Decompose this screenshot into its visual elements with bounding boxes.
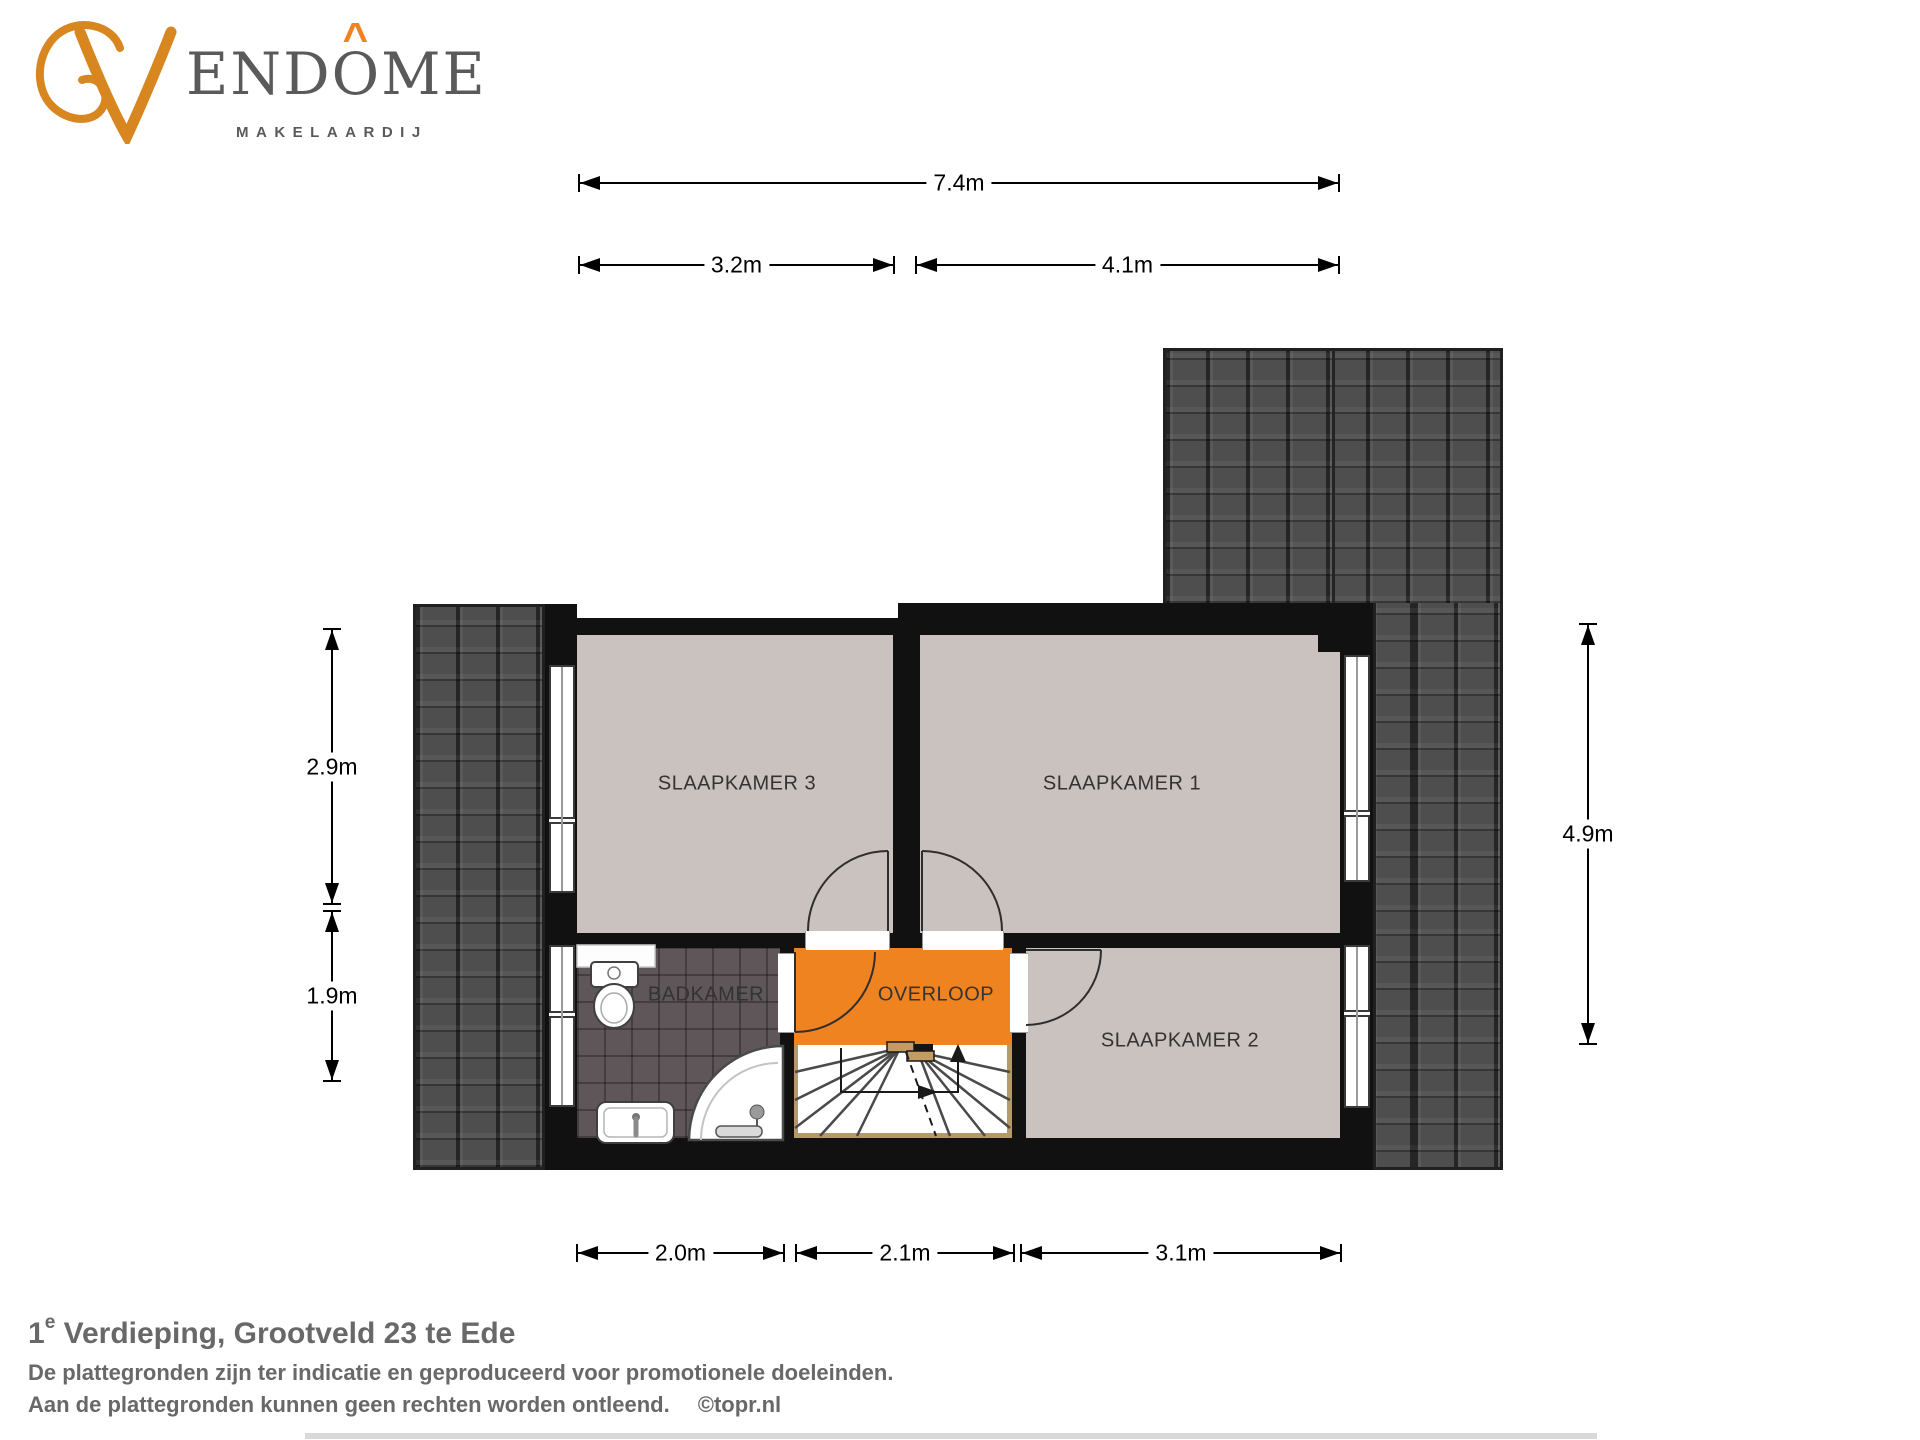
window-slaapkamer1-right	[1344, 655, 1370, 882]
vendome-v-swirl-icon	[28, 12, 198, 144]
dimension-badkamer-width: 2.0m	[576, 1242, 785, 1264]
plan-title-text: Verdieping, Grootveld 23 te Ede	[55, 1317, 515, 1350]
arrow-down-icon	[1581, 1023, 1595, 1043]
bottom-edge-strip	[305, 1433, 1597, 1439]
arrow-left-icon	[797, 1246, 817, 1260]
dimension-left-upper-height: 2.9m	[321, 628, 343, 905]
dimension-label: 2.0m	[648, 1239, 713, 1268]
arrow-up-icon	[325, 630, 339, 650]
dimension-slaapkamer2-width: 3.1m	[1020, 1242, 1342, 1264]
window-transom	[549, 1011, 575, 1018]
wall-corner-top-left	[545, 604, 577, 620]
wordmark-prefix: END	[186, 40, 332, 108]
dimension-label: 4.1m	[1095, 251, 1160, 280]
window-slaapkamer2-right	[1344, 945, 1370, 1108]
plan-title-superscript: e	[45, 1312, 56, 1333]
label-slaapkamer2: SLAAPKAMER 2	[1101, 1030, 1259, 1053]
staircase-area	[793, 1045, 1012, 1138]
dimension-label: 1.9m	[299, 982, 364, 1011]
disclaimer-line-2: Aan de plattegronden kunnen geen rechten…	[28, 1392, 781, 1418]
arrow-right-icon	[873, 258, 893, 272]
wordmark-suffix: ME	[381, 40, 487, 108]
arrow-left-icon	[917, 258, 937, 272]
wall-center-divider	[893, 635, 920, 948]
dimension-label: 4.9m	[1555, 820, 1620, 849]
dimension-label: 3.2m	[704, 251, 769, 280]
arrow-right-icon	[1320, 1246, 1340, 1260]
window-transom	[549, 817, 575, 824]
dimension-slaapkamer1-width: 4.1m	[915, 254, 1340, 276]
label-badkamer: BADKAMER	[648, 984, 764, 1007]
plan-title: 1e Verdieping, Grootveld 23 te Ede	[28, 1316, 515, 1351]
arrow-right-icon	[1318, 258, 1338, 272]
vendome-wordmark: ENDO^ME	[186, 40, 487, 108]
arrow-left-icon	[580, 258, 600, 272]
floorplan-page: ENDO^ME MAKELAARDIJ	[0, 0, 1920, 1440]
wall-bottom	[545, 1138, 1373, 1170]
wordmark-o: O^	[332, 40, 382, 108]
label-slaapkamer3: SLAAPKAMER 3	[658, 773, 816, 796]
dimension-right-height: 4.9m	[1577, 623, 1599, 1045]
wall-top-right	[898, 603, 1373, 635]
window-transom	[1344, 1010, 1370, 1017]
arrow-up-icon	[325, 912, 339, 932]
arrow-left-icon	[1022, 1246, 1042, 1260]
dimension-slaapkamer3-width: 3.2m	[578, 254, 895, 276]
doorway-slaapkamer2	[1010, 953, 1028, 1033]
wall-stub-slaapkamer1-corner	[1318, 632, 1373, 652]
window-badkamer-left	[549, 945, 575, 1107]
roof-right	[1373, 603, 1503, 1170]
vendome-logo: ENDO^ME MAKELAARDIJ	[28, 12, 468, 142]
circumflex-accent-icon: ^	[343, 14, 371, 64]
credit-text: ©topr.nl	[698, 1392, 781, 1417]
arrow-left-icon	[580, 176, 600, 190]
label-slaapkamer1: SLAAPKAMER 1	[1043, 773, 1201, 796]
dimension-label: 2.9m	[299, 752, 364, 781]
dimension-overloop-width: 2.1m	[795, 1242, 1015, 1264]
room-badkamer-floor	[577, 948, 780, 1138]
disclaimer-text: Aan de plattegronden kunnen geen rechten…	[28, 1392, 670, 1417]
arrow-left-icon	[578, 1246, 598, 1260]
roof-ridge-line	[1332, 350, 1335, 603]
roof-left	[413, 604, 545, 1170]
dimension-total-width: 7.4m	[578, 172, 1340, 194]
doorway-badkamer	[778, 953, 796, 1033]
arrow-up-icon	[1581, 625, 1595, 645]
dimension-label: 7.4m	[926, 169, 991, 198]
window-transom	[1344, 810, 1370, 817]
arrow-right-icon	[993, 1246, 1013, 1260]
doorway-slaapkamer3	[805, 931, 890, 950]
dimension-label: 3.1m	[1148, 1239, 1213, 1268]
dimension-label: 2.1m	[872, 1239, 937, 1268]
plan-title-number: 1	[28, 1317, 45, 1350]
label-overloop: OVERLOOP	[878, 984, 994, 1007]
dimension-left-lower-height: 1.9m	[321, 910, 343, 1082]
arrow-right-icon	[1318, 176, 1338, 190]
wall-top-left	[545, 618, 913, 635]
doorway-slaapkamer1	[922, 931, 1004, 950]
arrow-down-icon	[325, 883, 339, 903]
vendome-subtitle: MAKELAARDIJ	[236, 124, 428, 141]
disclaimer-line-1: De plattegronden zijn ter indicatie en g…	[28, 1360, 893, 1386]
window-slaapkamer3-left	[549, 665, 575, 893]
arrow-down-icon	[325, 1060, 339, 1080]
arrow-right-icon	[763, 1246, 783, 1260]
